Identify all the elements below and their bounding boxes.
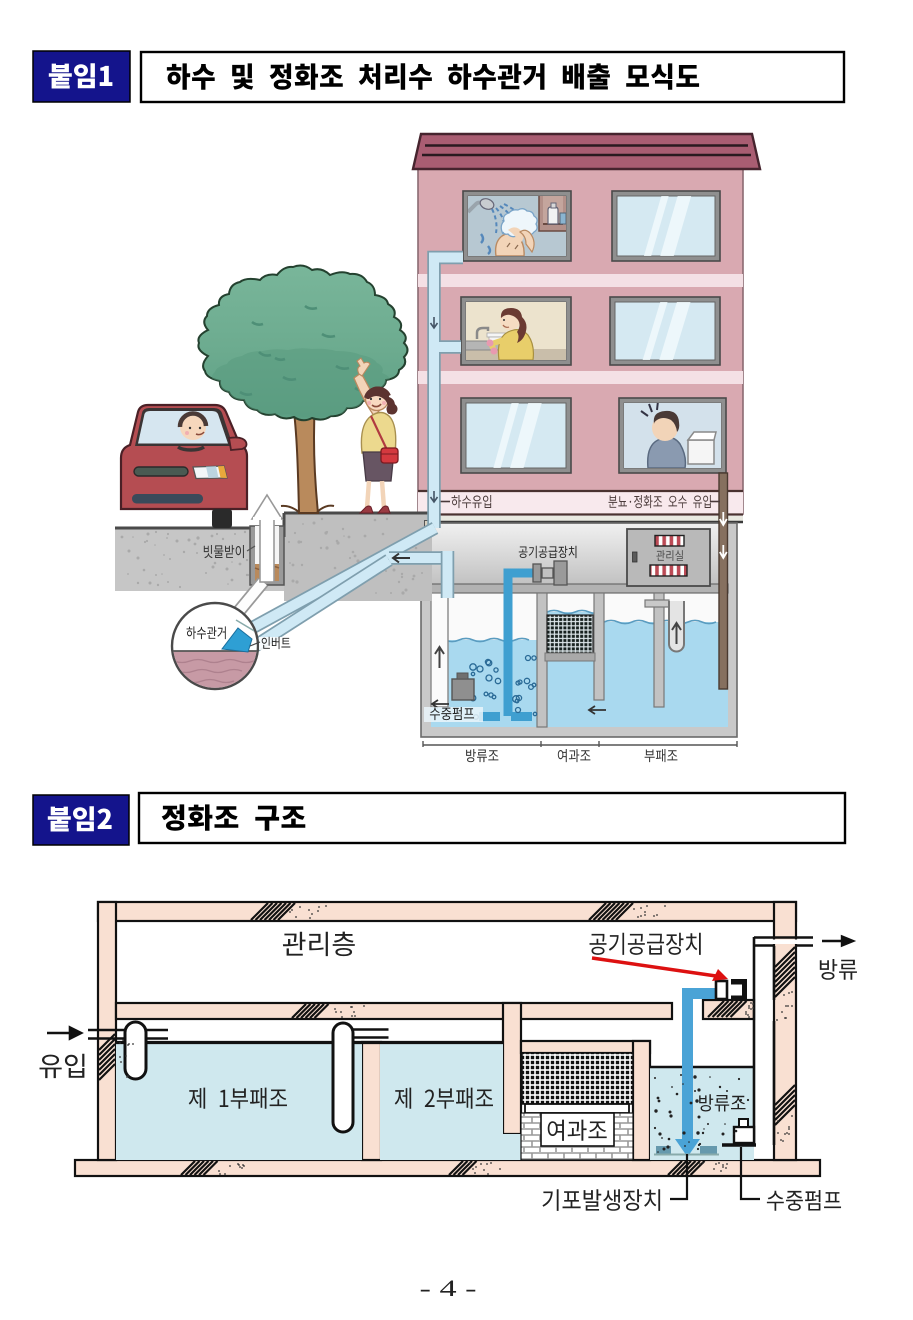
svg-text:- 4 -: - 4 - (420, 1276, 477, 1301)
